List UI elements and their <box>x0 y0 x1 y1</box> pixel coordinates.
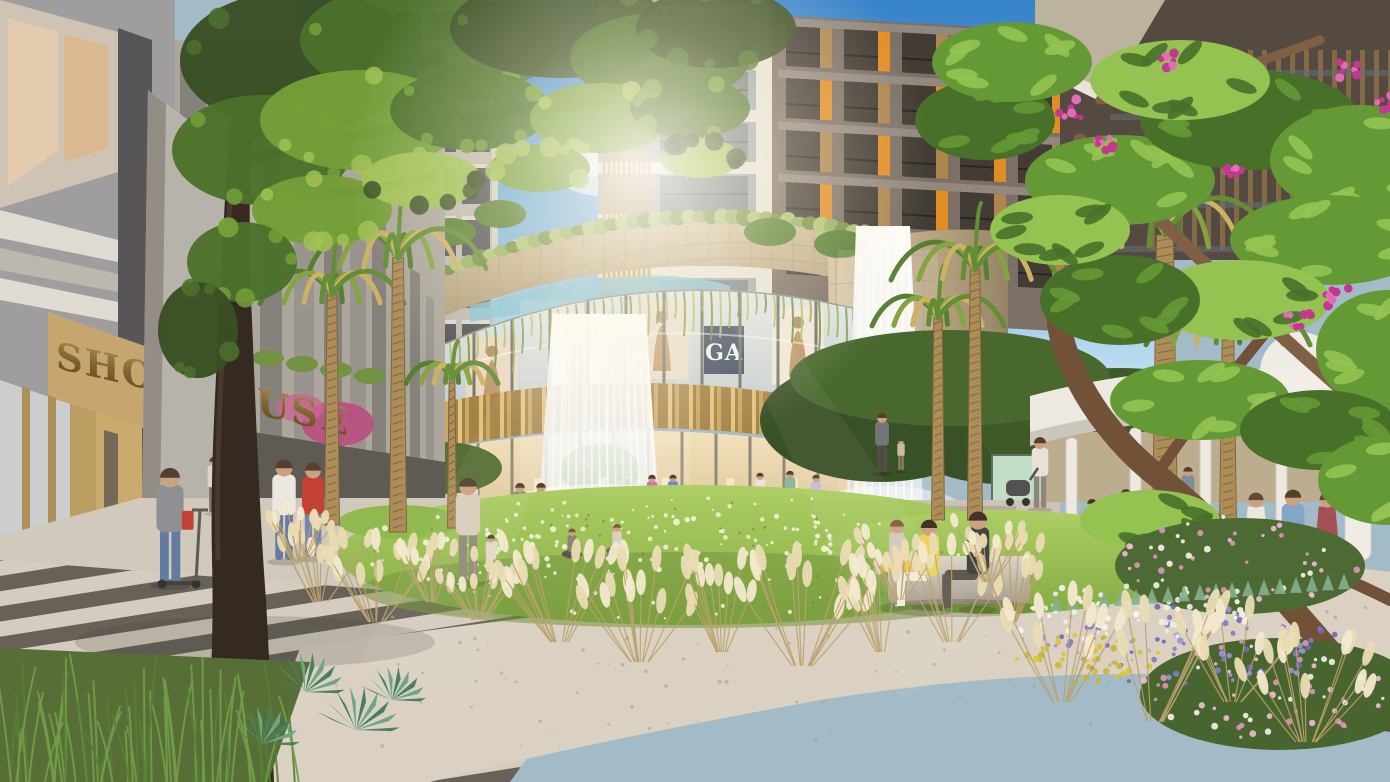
rendering-canvas: GA <box>0 0 1390 782</box>
light-effects <box>0 0 1390 782</box>
scene-art: GA <box>0 0 1390 782</box>
